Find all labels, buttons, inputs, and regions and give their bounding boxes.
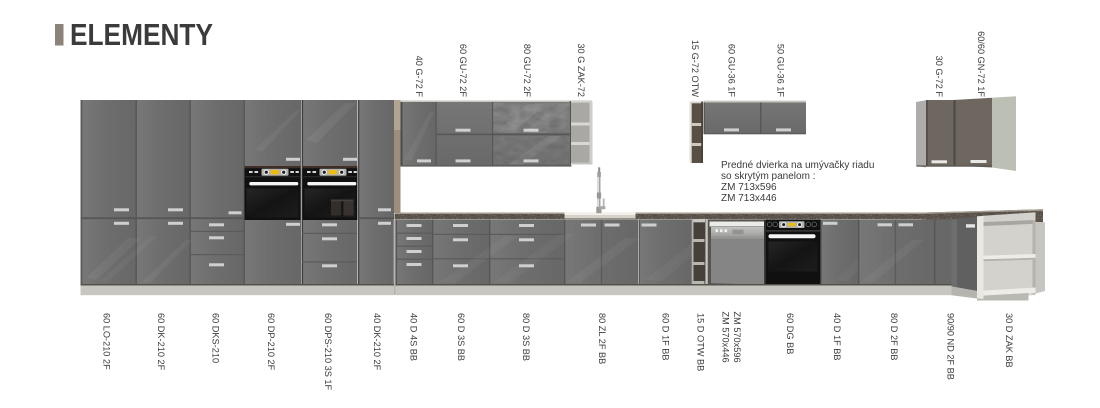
svg-text:ELEMENTY: ELEMENTY [70, 17, 213, 52]
svg-text:80 D 3S BB: 80 D 3S BB [521, 313, 531, 361]
svg-text:60 DG BB: 60 DG BB [785, 313, 795, 354]
svg-text:30 D ZAK BB: 30 D ZAK BB [1004, 313, 1014, 368]
svg-text:40 D 1F BB: 40 D 1F BB [832, 313, 842, 361]
svg-text:60 DKS-210: 60 DKS-210 [211, 313, 221, 363]
svg-text:30 G-72 F: 30 G-72 F [934, 56, 944, 98]
svg-text:30 G ZAK-72: 30 G ZAK-72 [576, 43, 586, 97]
svg-text:40 D 4S BB: 40 D 4S BB [409, 313, 419, 361]
svg-text:80 ZL 2F BB: 80 ZL 2F BB [597, 313, 607, 364]
svg-text:90/90 ND 2F BB: 90/90 ND 2F BB [946, 313, 956, 380]
svg-text:80 D 2F BB: 80 D 2F BB [889, 313, 899, 361]
svg-text:60 D 1F BB: 60 D 1F BB [661, 313, 671, 361]
svg-text:15 G-72 OTW: 15 G-72 OTW [690, 40, 700, 98]
svg-text:60 GU-36 1F: 60 GU-36 1F [727, 44, 737, 97]
svg-text:60 D 3S BB: 60 D 3S BB [456, 313, 466, 361]
svg-text:40 G-72 F: 40 G-72 F [414, 56, 424, 98]
svg-text:ZM 713x446: ZM 713x446 [721, 193, 777, 204]
svg-text:80 GU-72 2F: 80 GU-72 2F [522, 44, 532, 97]
svg-text:15 D OTW BB: 15 D OTW BB [696, 313, 706, 371]
svg-text:60 LO-210 2F: 60 LO-210 2F [102, 313, 112, 370]
svg-text:60 DP-210 2F: 60 DP-210 2F [266, 313, 276, 371]
svg-text:ZM 570x596: ZM 570x596 [732, 312, 742, 363]
svg-text:60/60 GN-72 1F: 60/60 GN-72 1F [976, 31, 986, 97]
svg-text:60 DPS-210 3S 1F: 60 DPS-210 3S 1F [323, 313, 333, 391]
svg-text:60 GU-72 2F: 60 GU-72 2F [458, 44, 468, 97]
svg-text:ZM 570x446: ZM 570x446 [721, 312, 731, 363]
svg-text:50 GU-36 1F: 50 GU-36 1F [776, 44, 786, 97]
svg-text:40 DK-210 2F: 40 DK-210 2F [372, 313, 382, 371]
svg-text:60 DK-210 2F: 60 DK-210 2F [156, 313, 166, 371]
svg-text:ZM 713x596: ZM 713x596 [721, 182, 777, 193]
svg-text:so skrytým panelom :: so skrytým panelom : [721, 171, 815, 182]
svg-text:Predné dvierka na umývačky ria: Predné dvierka na umývačky riadu [721, 160, 874, 171]
